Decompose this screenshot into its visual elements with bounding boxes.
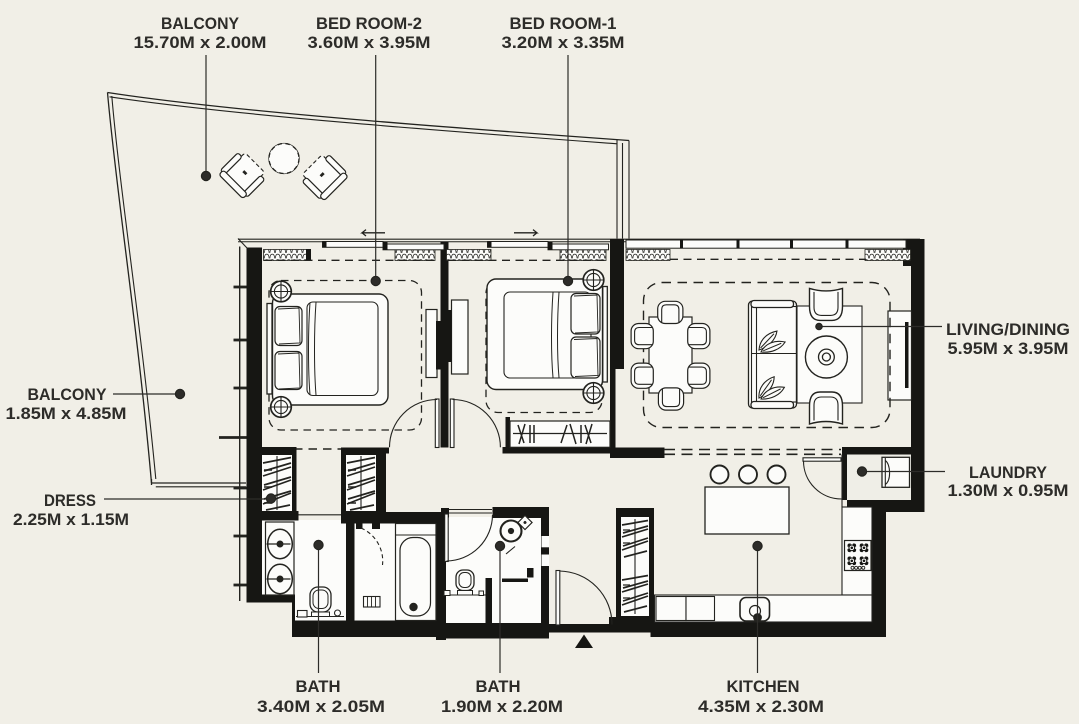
- svg-text:BED ROOM-2: BED ROOM-2: [316, 14, 422, 33]
- svg-text:15.70M x 2.00M: 15.70M x 2.00M: [134, 33, 267, 52]
- svg-text:5.95M x 3.95M: 5.95M x 3.95M: [948, 339, 1069, 358]
- svg-text:BALCONY: BALCONY: [28, 385, 108, 404]
- svg-text:KITCHEN: KITCHEN: [727, 677, 800, 696]
- svg-text:BED ROOM-1: BED ROOM-1: [510, 14, 617, 33]
- svg-text:3.20M x 3.35M: 3.20M x 3.35M: [502, 33, 625, 52]
- svg-text:BATH: BATH: [476, 677, 521, 696]
- svg-text:BALCONY: BALCONY: [161, 14, 240, 33]
- svg-text:2.25M x 1.15M: 2.25M x 1.15M: [13, 510, 129, 529]
- svg-text:1.30M x 0.95M: 1.30M x 0.95M: [948, 481, 1069, 500]
- svg-text:4.35M x 2.30M: 4.35M x 2.30M: [698, 697, 824, 716]
- svg-text:LIVING/DINING: LIVING/DINING: [946, 320, 1070, 339]
- svg-text:BATH: BATH: [296, 677, 341, 696]
- svg-text:DRESS: DRESS: [44, 491, 96, 510]
- svg-text:3.40M x 2.05M: 3.40M x 2.05M: [257, 697, 385, 716]
- svg-text:LAUNDRY: LAUNDRY: [969, 463, 1048, 482]
- svg-text:1.85M x 4.85M: 1.85M x 4.85M: [6, 404, 127, 423]
- svg-text:3.60M x 3.95M: 3.60M x 3.95M: [308, 33, 431, 52]
- svg-text:1.90M x 2.20M: 1.90M x 2.20M: [441, 697, 563, 716]
